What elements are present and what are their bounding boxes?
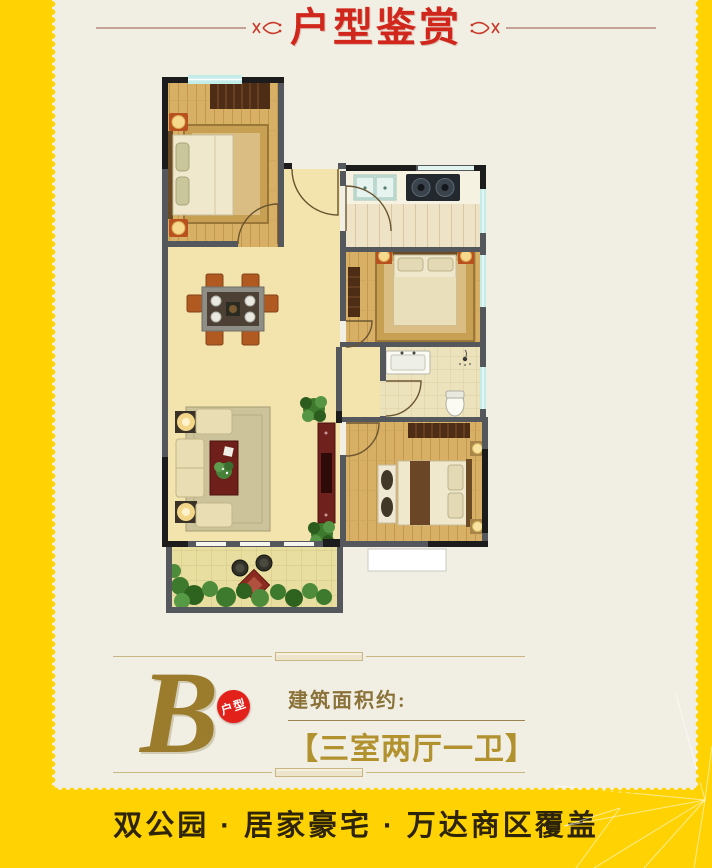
kitchen-cabinets (346, 204, 486, 247)
unit-block: B 户型 (140, 660, 300, 772)
divider-bar-ornament (275, 768, 363, 777)
floor-plan (152, 71, 493, 617)
wardrobe (408, 423, 470, 438)
header-line-left (96, 27, 246, 29)
layout-name: 【三室两厅一卫】 (288, 724, 536, 768)
unit-info: 建筑面积约: 【三室两厅一卫】 (288, 684, 536, 768)
slogan: 双公园 · 居家豪宅 · 万达商区覆盖 (113, 802, 599, 844)
divider-bottom (113, 768, 525, 777)
header: 户型鉴赏 (52, 7, 698, 49)
sliding-door (196, 542, 314, 546)
wardrobe (348, 267, 360, 317)
page-title: 户型鉴赏 (288, 7, 464, 49)
kitchen (354, 174, 460, 201)
flourish-icon (251, 19, 283, 37)
entry-hall-floor (284, 169, 340, 247)
area-underline (288, 720, 525, 721)
poster-page: 户型鉴赏 (0, 0, 712, 868)
header-line-right (506, 27, 656, 29)
potted-plant (300, 396, 327, 422)
corridor-floor (342, 347, 380, 417)
unit-letter: B (140, 654, 219, 772)
area-label: 建筑面积约: (288, 684, 536, 713)
flourish-icon (469, 19, 501, 37)
bay-ledge (368, 549, 446, 571)
footer-band: 双公园 · 居家豪宅 · 万达商区覆盖 (0, 790, 712, 868)
